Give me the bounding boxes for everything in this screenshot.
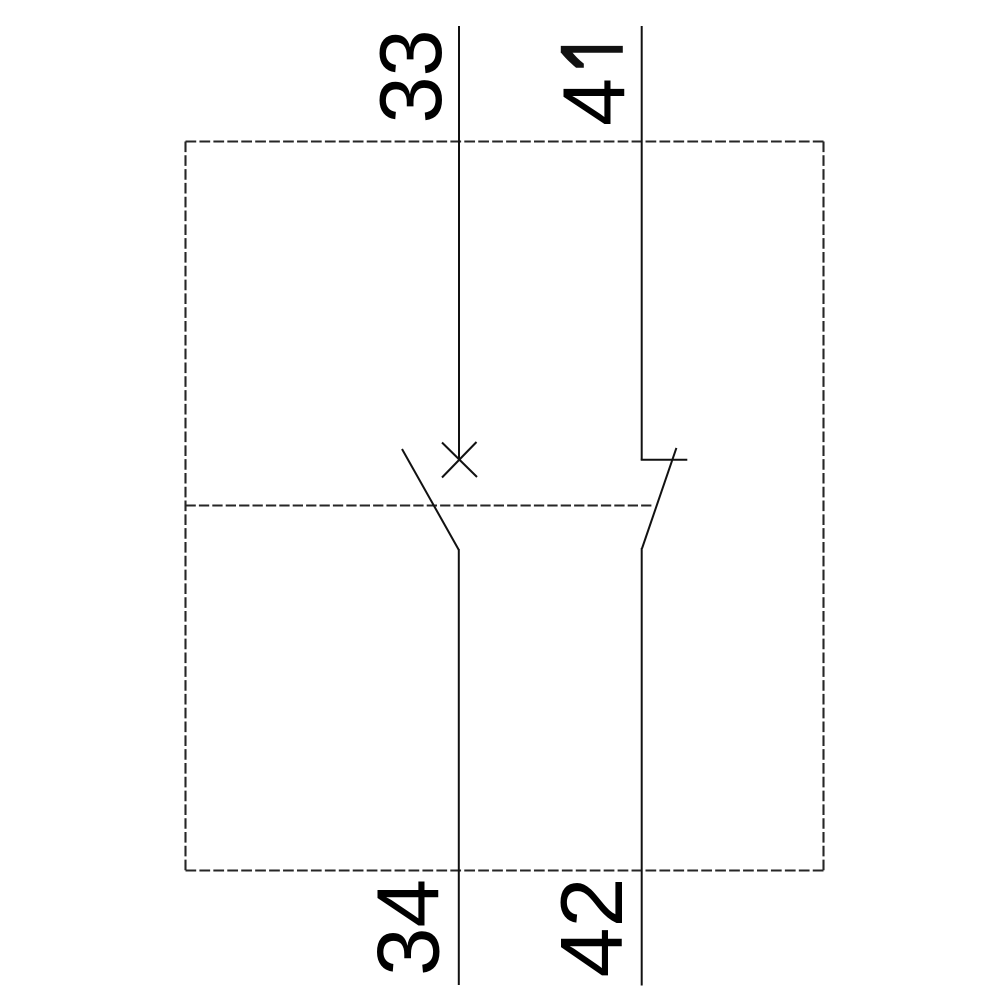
svg-text:34: 34 [359,879,457,976]
svg-text:4: 4 [546,78,644,126]
svg-text:33: 33 [362,29,460,123]
svg-text:42: 42 [542,877,641,977]
